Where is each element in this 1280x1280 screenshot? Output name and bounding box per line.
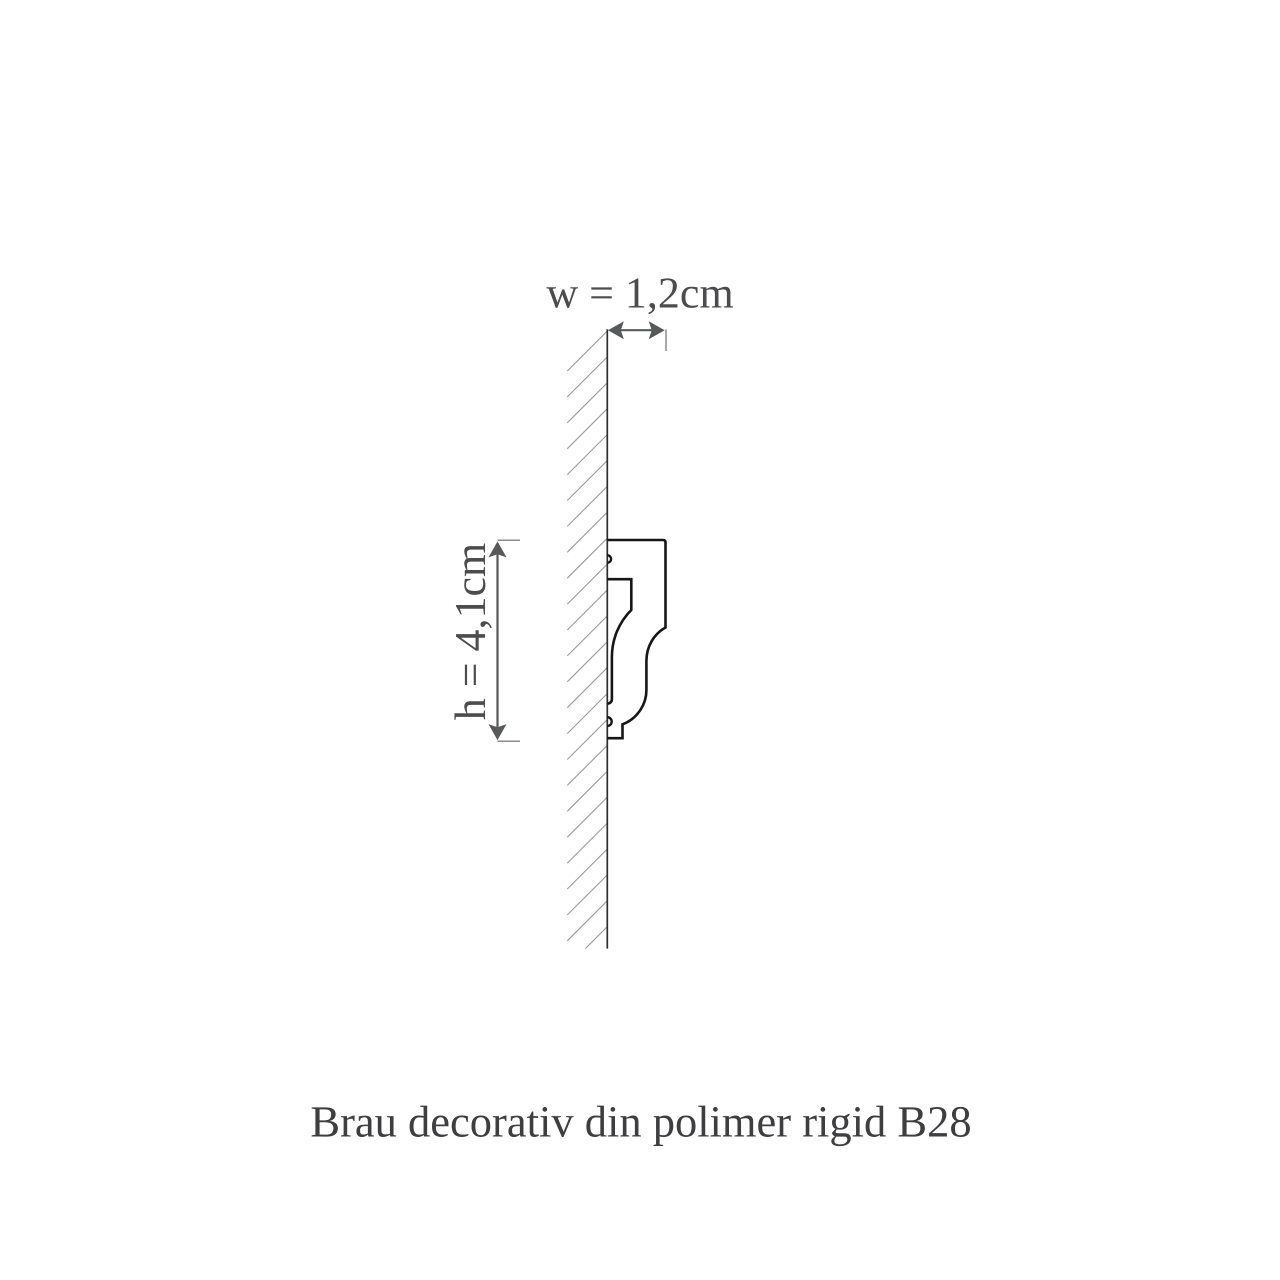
svg-text:h = 4,1cm: h = 4,1cm: [446, 543, 495, 721]
svg-text:Brau decorativ din polimer rig: Brau decorativ din polimer rigid B28: [310, 1097, 971, 1147]
svg-text:w = 1,2cm: w = 1,2cm: [546, 269, 733, 318]
